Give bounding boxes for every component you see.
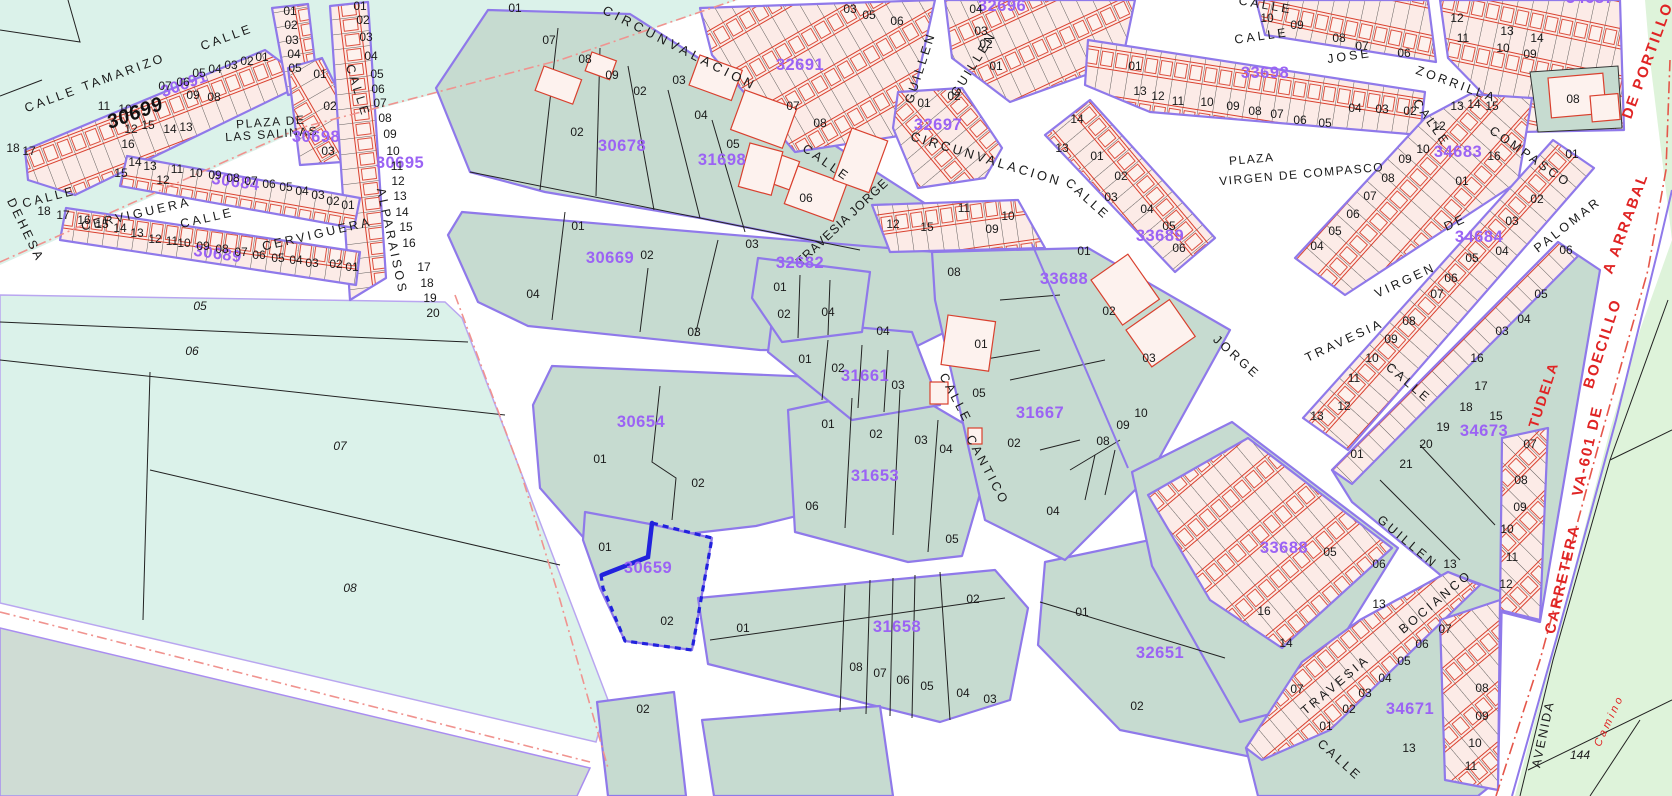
parcel-number: 10: [1500, 522, 1514, 536]
parcel-number: 03: [891, 378, 905, 392]
street-name: JORGE: [1210, 332, 1263, 381]
parcel-number: 17: [417, 260, 431, 274]
parcel-number: 11: [958, 201, 971, 215]
street-name: PLAZA: [1228, 150, 1275, 168]
parcel-number: 12: [1432, 119, 1446, 133]
parcel-number: 06: [1397, 46, 1411, 60]
parcel-number: 01: [593, 452, 607, 466]
parcel-number: 05: [726, 137, 740, 151]
parcel-number: 01: [1090, 149, 1104, 163]
parcel-number: 13: [393, 189, 407, 203]
parcel-number: 04: [364, 49, 378, 63]
parcel-number: 16: [1257, 604, 1271, 618]
block-id-label[interactable]: 34683: [1434, 143, 1482, 161]
parcel-number: 08: [1514, 473, 1528, 487]
parcel-number: 07: [1430, 287, 1444, 301]
parcel-number: 03: [321, 144, 335, 158]
parcel-number: 18: [420, 276, 434, 290]
parcel-number: 18: [37, 204, 51, 218]
parcel-number: 11: [1457, 31, 1470, 45]
parcel-number: 05: [1328, 224, 1342, 238]
parcel-number: 06: [1415, 637, 1429, 651]
parcel-number: 12: [156, 173, 170, 187]
parcel-number: 08: [343, 581, 357, 595]
parcel-number: 11: [1348, 371, 1361, 385]
parcel-number: 14: [163, 122, 177, 136]
parcel-number: 14: [113, 221, 127, 235]
parcel-number: 04: [1348, 101, 1362, 115]
parcel-number: 04: [287, 47, 301, 61]
parcel-number: 07: [1523, 437, 1537, 451]
parcel-number: 05: [271, 251, 285, 265]
parcel-number: 01: [1565, 147, 1579, 161]
parcel-number: 01: [598, 540, 612, 554]
parcel-number: 01: [773, 280, 787, 294]
parcel-number: 01: [798, 352, 812, 366]
cadastral-map-svg[interactable]: CALLETAMARIZOCALLECALLEDEHESACERVIGUERAC…: [0, 0, 1672, 796]
parcel-number: 09: [186, 88, 200, 102]
parcel-number: 16: [1487, 149, 1501, 163]
parcel-number: 04: [295, 184, 309, 198]
parcel-number: 09: [208, 168, 222, 182]
block-b-bottom-2: [702, 706, 893, 796]
parcel-number: 08: [226, 171, 240, 185]
block-id-label[interactable]: 30678: [598, 137, 646, 155]
parcel-number: 11: [1506, 550, 1519, 564]
parcel-number: 01: [1077, 244, 1091, 258]
parcel-number: 10: [189, 166, 203, 180]
parcel-number: 04: [1378, 671, 1392, 685]
parcel-number: 03: [914, 433, 928, 447]
parcel-number: 04: [969, 2, 983, 16]
parcel-number: 03: [1358, 686, 1372, 700]
parcel-number: 07: [373, 96, 387, 110]
parcel-number: 07: [873, 666, 887, 680]
parcel-number: 05: [972, 386, 986, 400]
block-id-label[interactable]: 34687: [1566, 0, 1614, 7]
parcel-number: 07: [1438, 622, 1452, 636]
parcel-number: 01: [1075, 605, 1089, 619]
block-id-label[interactable]: 30654: [617, 413, 666, 431]
block-id-label[interactable]: 33688: [1260, 539, 1308, 557]
parcel-number: 15: [114, 166, 128, 180]
parcel-number: 01: [989, 59, 1003, 73]
parcel-number: 17: [22, 144, 36, 158]
block-id-label[interactable]: 34673: [1460, 422, 1508, 440]
parcel-number: 04: [526, 287, 540, 301]
parcel-number: 13: [1133, 84, 1147, 98]
parcel-number: 08: [1475, 681, 1489, 695]
parcel-number: 08: [947, 265, 961, 279]
parcel-number: 16: [402, 236, 416, 250]
parcel-number: 01: [917, 96, 931, 110]
parcel-number: 01: [571, 219, 585, 233]
parcel-number: 02: [660, 614, 674, 628]
parcel-number: 11: [391, 159, 404, 173]
parcel-number: 06: [890, 14, 904, 28]
parcel-number: 01: [255, 50, 269, 64]
street-name: CALLE: [1233, 25, 1289, 46]
parcel-number: 08: [207, 90, 221, 104]
parcel-number: 10: [386, 144, 400, 158]
parcel-number: 01: [345, 260, 359, 274]
parcel-number: 10: [1468, 736, 1482, 750]
parcel-number: 05: [1465, 251, 1479, 265]
parcel-number: 04: [694, 108, 708, 122]
parcel-number: 09: [1398, 152, 1412, 166]
parcel-number: 02: [284, 18, 298, 32]
parcel-number: 03: [1505, 214, 1519, 228]
parcel-number: 10: [177, 236, 191, 250]
parcel-number: 07: [234, 245, 248, 259]
parcel-number: 10: [1001, 209, 1015, 223]
parcel-number: 10: [1134, 406, 1148, 420]
block-id-label[interactable]: 31667: [1016, 404, 1064, 422]
parcel-number: 03: [311, 188, 325, 202]
parcel-number: 13: [1310, 409, 1324, 423]
parcel-number: 07: [542, 33, 556, 47]
parcel-number: 07: [1290, 682, 1304, 696]
parcel-number: 12: [1337, 399, 1351, 413]
block-id-label[interactable]: 33688: [1040, 270, 1088, 288]
block-id-label[interactable]: 32697: [914, 116, 962, 134]
parcel-number: 05: [920, 679, 934, 693]
parcel-number: 07: [786, 99, 800, 113]
parcel-number: 11: [1465, 759, 1478, 773]
parcel-number: 01: [1319, 719, 1333, 733]
parcel-number: 03: [285, 33, 299, 47]
parcel-number: 11: [1172, 94, 1185, 108]
parcel-number: 02: [636, 702, 650, 716]
parcel-number: 15: [95, 217, 109, 231]
parcel-number: 01: [283, 4, 297, 18]
parcel-number: 15: [1489, 409, 1503, 423]
parcel-number: 01: [508, 1, 522, 15]
parcel-number: 03: [974, 24, 988, 38]
parcel-number: 04: [1140, 202, 1154, 216]
parcel-number: 01: [821, 417, 835, 431]
parcel-number: 02: [1114, 169, 1128, 183]
parcel-number: 12: [1450, 11, 1464, 25]
parcel-number: 09: [383, 127, 397, 141]
parcel-number: 05: [288, 61, 302, 75]
parcel-number: 01: [1455, 174, 1469, 188]
building-footprint: [1590, 94, 1620, 122]
block-id-label[interactable]: 32696: [978, 0, 1026, 15]
parcel-number: 05: [945, 532, 959, 546]
parcel-number: 04: [1046, 504, 1060, 518]
parcel-number: 12: [1499, 577, 1513, 591]
parcel-number: 17: [1474, 379, 1488, 393]
parcel-number: 13: [130, 226, 144, 240]
parcel-number: 14: [1070, 112, 1084, 126]
parcel-number: 03: [672, 73, 686, 87]
block-id-label[interactable]: 31698: [698, 151, 746, 169]
parcel-number: 04: [208, 62, 222, 76]
parcel-number: 04: [821, 305, 835, 319]
parcel-number: 18: [1459, 400, 1473, 414]
parcel-number: 07: [333, 439, 348, 453]
parcel-number: 02: [640, 248, 654, 262]
parcel-number: 08: [1332, 31, 1346, 45]
parcel-number: 14: [395, 205, 409, 219]
parcel-number: 04: [289, 253, 303, 267]
parcel-number: 14: [1467, 97, 1481, 111]
parcel-number: 04: [956, 686, 970, 700]
block-id-label[interactable]: 31661: [841, 367, 889, 385]
parcel-number: 18: [6, 141, 20, 155]
parcel-number: 09: [1384, 332, 1398, 346]
block-id-label[interactable]: 32682: [776, 254, 824, 272]
parcel-number: 12: [148, 232, 162, 246]
parcel-number: 02: [1530, 192, 1544, 206]
parcel-number: 10: [1200, 95, 1214, 109]
parcel-number: 13: [1450, 99, 1464, 113]
parcel-number: 05: [192, 66, 206, 80]
parcel-number: 05: [370, 67, 384, 81]
parcel-number: 09: [1475, 709, 1489, 723]
parcel-number: 08: [578, 52, 592, 66]
parcel-number: 09: [985, 222, 999, 236]
parcel-number: 03: [687, 325, 701, 339]
parcel-number: 03: [1142, 351, 1156, 365]
parcel-number: 08: [378, 111, 392, 125]
parcel-number: 07: [1363, 189, 1377, 203]
parcel-number: 09: [605, 68, 619, 82]
parcel-number: 04: [1495, 244, 1509, 258]
parcel-number: 13: [1372, 597, 1386, 611]
block-id-label[interactable]: 32651: [1136, 644, 1184, 662]
parcel-number: 05: [1397, 654, 1411, 668]
parcel-number: 03: [224, 58, 238, 72]
parcel-number: 02: [1403, 104, 1417, 118]
parcel-number: 06: [1293, 113, 1307, 127]
parcel-number: 11: [171, 162, 184, 176]
parcel-number: 12: [391, 174, 405, 188]
parcel-number: 06: [1444, 271, 1458, 285]
parcel-number: 08: [849, 660, 863, 674]
parcel-number: 04: [876, 324, 890, 338]
parcel-number: 08: [215, 242, 229, 256]
parcel-number: 02: [326, 194, 340, 208]
parcel-number: 09: [196, 239, 210, 253]
parcel-number: 03: [745, 237, 759, 251]
parcel-number: 20: [426, 306, 440, 320]
parcel-number: 06: [1172, 241, 1186, 255]
parcel-number: 08: [813, 116, 827, 130]
parcel-number: 07: [158, 79, 172, 93]
parcel-number: 13: [179, 120, 193, 134]
parcel-number: 06: [1559, 243, 1573, 257]
parcel-number: 03: [983, 692, 997, 706]
parcel-number: 09: [1226, 99, 1240, 113]
parcel-number: 01: [353, 0, 367, 13]
block-b30659: [583, 512, 712, 650]
parcel-number: 02: [240, 54, 254, 68]
parcel-number: 144: [1570, 748, 1590, 762]
parcel-number: 03: [1104, 190, 1118, 204]
parcel-number: 05: [862, 8, 876, 22]
parcel-number: 06: [896, 673, 910, 687]
parcel-number: 05: [1534, 287, 1548, 301]
parcel-number: 14: [1530, 31, 1544, 45]
parcel-number: 08: [1248, 104, 1262, 118]
parcel-number: 04: [1310, 239, 1324, 253]
parcel-number: 02: [869, 427, 883, 441]
parcel-number: 10: [1365, 351, 1379, 365]
parcel-number: 02: [323, 99, 337, 113]
parcel-number: 02: [777, 307, 791, 321]
parcel-number: 06: [371, 82, 385, 96]
parcel-number: 09: [1116, 418, 1130, 432]
parcel-number: 03: [1495, 324, 1509, 338]
parcel-number: 09: [1513, 500, 1527, 514]
parcel-number: 08: [1402, 314, 1416, 328]
parcel-number: 03: [1375, 102, 1389, 116]
parcel-number: 16: [77, 213, 91, 227]
parcel-number: 02: [947, 89, 961, 103]
parcel-number: 02: [633, 84, 647, 98]
parcel-number: 03: [359, 30, 373, 44]
parcel-number: 08: [1381, 171, 1395, 185]
parcel-number: 02: [966, 592, 980, 606]
parcel-number: 02: [1102, 304, 1116, 318]
parcel-number: 15: [1485, 99, 1499, 113]
parcel-number: 05: [193, 299, 207, 313]
parcel-number: 07: [1355, 39, 1369, 53]
parcel-number: 06: [805, 499, 819, 513]
parcel-number: 01: [313, 67, 327, 81]
parcel-number: 17: [56, 208, 70, 222]
parcel-number: 06: [1372, 557, 1386, 571]
parcel-number: 06: [799, 191, 813, 205]
parcel-number: 01: [736, 621, 750, 635]
parcel-number: 06: [262, 177, 276, 191]
parcel-number: 07: [244, 174, 258, 188]
parcel-number: 13: [1402, 741, 1416, 755]
parcel-number: 02: [691, 476, 705, 490]
parcel-number: 14: [128, 155, 142, 169]
parcel-number: 01: [1350, 447, 1364, 461]
parcel-number: 02: [979, 37, 993, 51]
parcel-number: 06: [185, 344, 199, 358]
parcel-number: 13: [1055, 141, 1069, 155]
parcel-number: 13: [1443, 557, 1457, 571]
parcel-number: 03: [843, 2, 857, 16]
block-id-label[interactable]: 33698: [1241, 64, 1289, 82]
parcel-number: 02: [1342, 702, 1356, 716]
parcel-number: 15: [399, 220, 413, 234]
parcel-number: 02: [329, 257, 343, 271]
parcel-number: 02: [356, 13, 370, 27]
block-id-label[interactable]: 31658: [873, 618, 921, 636]
parcel-number: 10: [1496, 41, 1510, 55]
parcel-number: 10: [1416, 142, 1430, 156]
parcel-number: 19: [1436, 420, 1450, 434]
parcel-number: 12: [886, 217, 900, 231]
parcel-number: 07: [1270, 107, 1284, 121]
parcel-number: 16: [121, 137, 135, 151]
parcel-number: 14: [1279, 636, 1293, 650]
parcel-number: 08: [1566, 92, 1580, 106]
parcel-number: 04: [939, 442, 953, 456]
parcel-number: 05: [1318, 116, 1332, 130]
parcel-number: 01: [1128, 59, 1142, 73]
parcel-number: 20: [1419, 437, 1433, 451]
parcel-number: 02: [1130, 699, 1144, 713]
block-id-label[interactable]: 30659: [624, 559, 672, 577]
parcel-number: 09: [1290, 18, 1304, 32]
parcel-number: 15: [920, 220, 934, 234]
parcel-number: 10: [1260, 11, 1274, 25]
parcel-number: 12: [1151, 89, 1165, 103]
parcel-number: 02: [570, 125, 584, 139]
block-id-label[interactable]: 34671: [1386, 700, 1434, 718]
parcel-number: 05: [1162, 219, 1176, 233]
parcel-number: 02: [1007, 436, 1021, 450]
parcel-number: 09: [1523, 47, 1537, 61]
parcel-number: 11: [166, 234, 179, 248]
parcel-number: 06: [176, 75, 190, 89]
parcel-number: 21: [1399, 457, 1413, 471]
parcel-number: 19: [423, 291, 437, 305]
parcel-number: 01: [974, 337, 988, 351]
parcel-number: 06: [1346, 207, 1360, 221]
parcel-number: 04: [1517, 312, 1531, 326]
street-name: A ARRABAL: [1600, 171, 1652, 276]
parcel-number: 08: [1096, 434, 1110, 448]
parcel-number: 16: [1470, 351, 1484, 365]
cadastral-map[interactable]: CALLETAMARIZOCALLECALLEDEHESACERVIGUERAC…: [0, 0, 1672, 796]
parcel-number: 03: [305, 256, 319, 270]
parcel-number: 02: [831, 361, 845, 375]
block-id-label[interactable]: 30669: [586, 249, 634, 267]
block-id-label[interactable]: 31653: [851, 467, 899, 485]
parcel-number: 05: [1323, 545, 1337, 559]
parcel-number: 13: [143, 159, 157, 173]
parcel-number: 06: [252, 248, 266, 262]
parcel-number: 01: [341, 198, 355, 212]
parcel-number: 05: [279, 180, 293, 194]
parcel-number: 13: [1500, 24, 1514, 38]
block-id-label[interactable]: 32691: [776, 56, 824, 74]
